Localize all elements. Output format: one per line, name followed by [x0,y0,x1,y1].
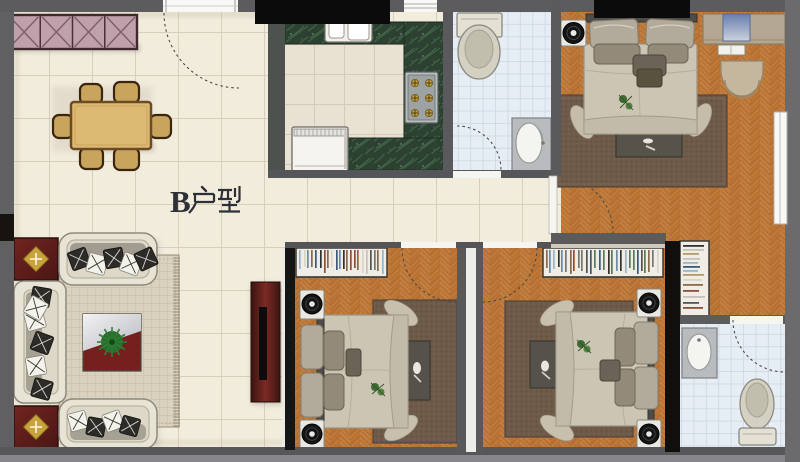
svg-text:B: B [170,184,191,219]
